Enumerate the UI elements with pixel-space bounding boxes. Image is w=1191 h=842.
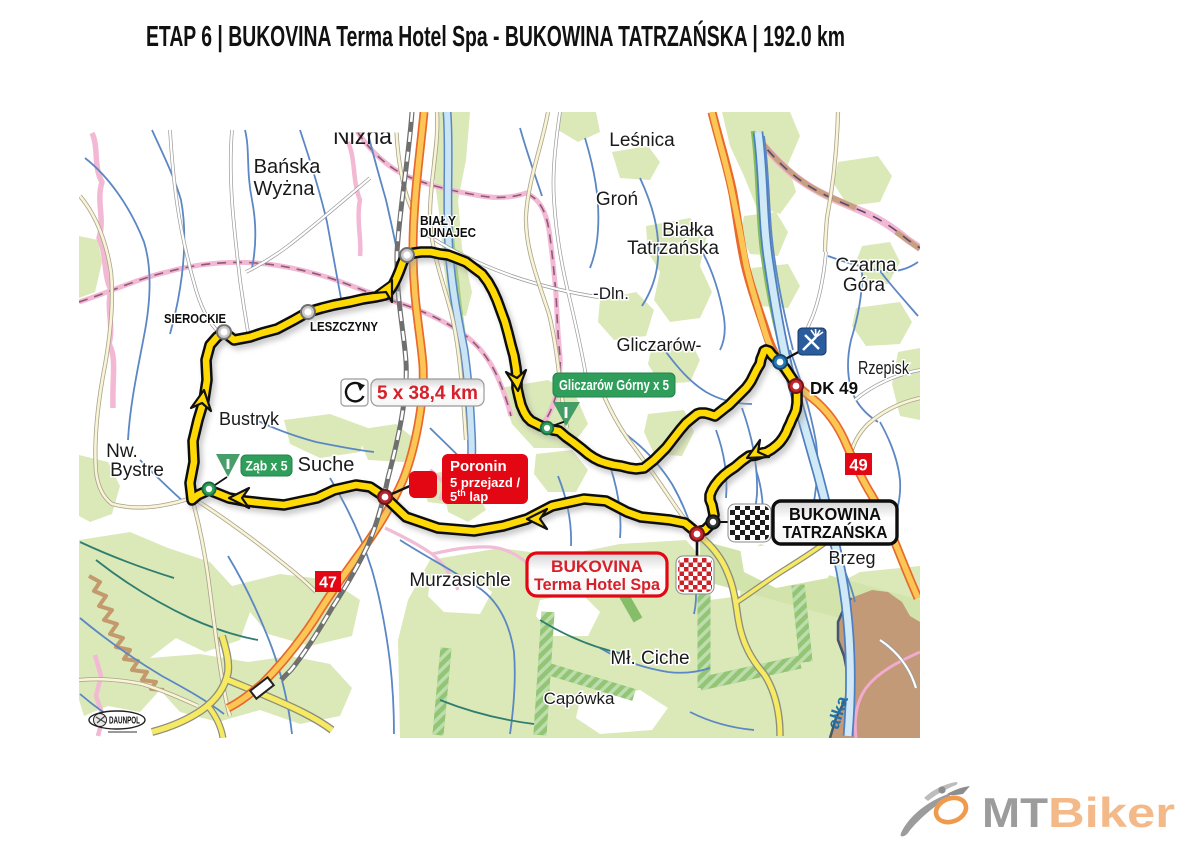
svg-text:Bańska: Bańska [254,156,322,178]
svg-text:ETAP 6 | BUKOVINA Terma Hotel: ETAP 6 | BUKOVINA Terma Hotel Spa - BUKO… [146,19,845,53]
svg-text:Mł. Ciche: Mł. Ciche [610,648,689,669]
svg-text:Tatrzańska: Tatrzańska [627,238,719,259]
svg-text:BUKOWINA: BUKOWINA [789,504,881,524]
svg-text:TATRZAŃSKA: TATRZAŃSKA [783,521,888,542]
svg-text:Groń: Groń [596,189,638,210]
svg-text:Gliczarów-: Gliczarów- [616,335,701,355]
svg-text:Wyżna: Wyżna [254,178,316,200]
svg-text:Suche: Suche [298,454,355,476]
svg-text:5 x 38,4 km: 5 x 38,4 km [377,382,478,404]
svg-text:BUKOVINA: BUKOVINA [551,557,643,576]
svg-text:DUNAJEC: DUNAJEC [420,225,477,240]
svg-text:5th lap: 5th lap [450,488,488,504]
svg-text:Poronin: Poronin [450,458,507,475]
svg-text:Capówka: Capówka [544,689,615,708]
svg-text:Murzasichle: Murzasichle [409,570,510,591]
svg-text:Gliczarów Górny x 5: Gliczarów Górny x 5 [559,377,669,394]
svg-text:Terma Hotel Spa: Terma Hotel Spa [534,576,661,594]
svg-text:Biker: Biker [1048,789,1175,836]
svg-text:Bystre: Bystre [110,460,164,481]
svg-text:-Dln.: -Dln. [593,284,629,303]
svg-text:47: 47 [319,575,337,592]
svg-text:Rzepisk: Rzepisk [858,358,910,378]
svg-text:MT: MT [982,789,1048,836]
svg-text:Góra: Góra [843,275,886,296]
svg-text:Leśnica: Leśnica [609,130,675,151]
svg-text:49: 49 [849,457,867,475]
svg-text:Ząb x 5: Ząb x 5 [246,459,288,474]
svg-text:Bustryk: Bustryk [219,409,280,429]
svg-text:SIEROCKIE: SIEROCKIE [164,311,226,326]
svg-text:Czarna: Czarna [835,255,897,276]
svg-text:DAUNPOL: DAUNPOL [109,716,140,727]
svg-text:LESZCZYNY: LESZCZYNY [310,319,378,334]
svg-text:Brzeg: Brzeg [828,548,875,568]
svg-text:Nw.: Nw. [106,441,138,462]
svg-text:DK 49: DK 49 [810,378,858,398]
